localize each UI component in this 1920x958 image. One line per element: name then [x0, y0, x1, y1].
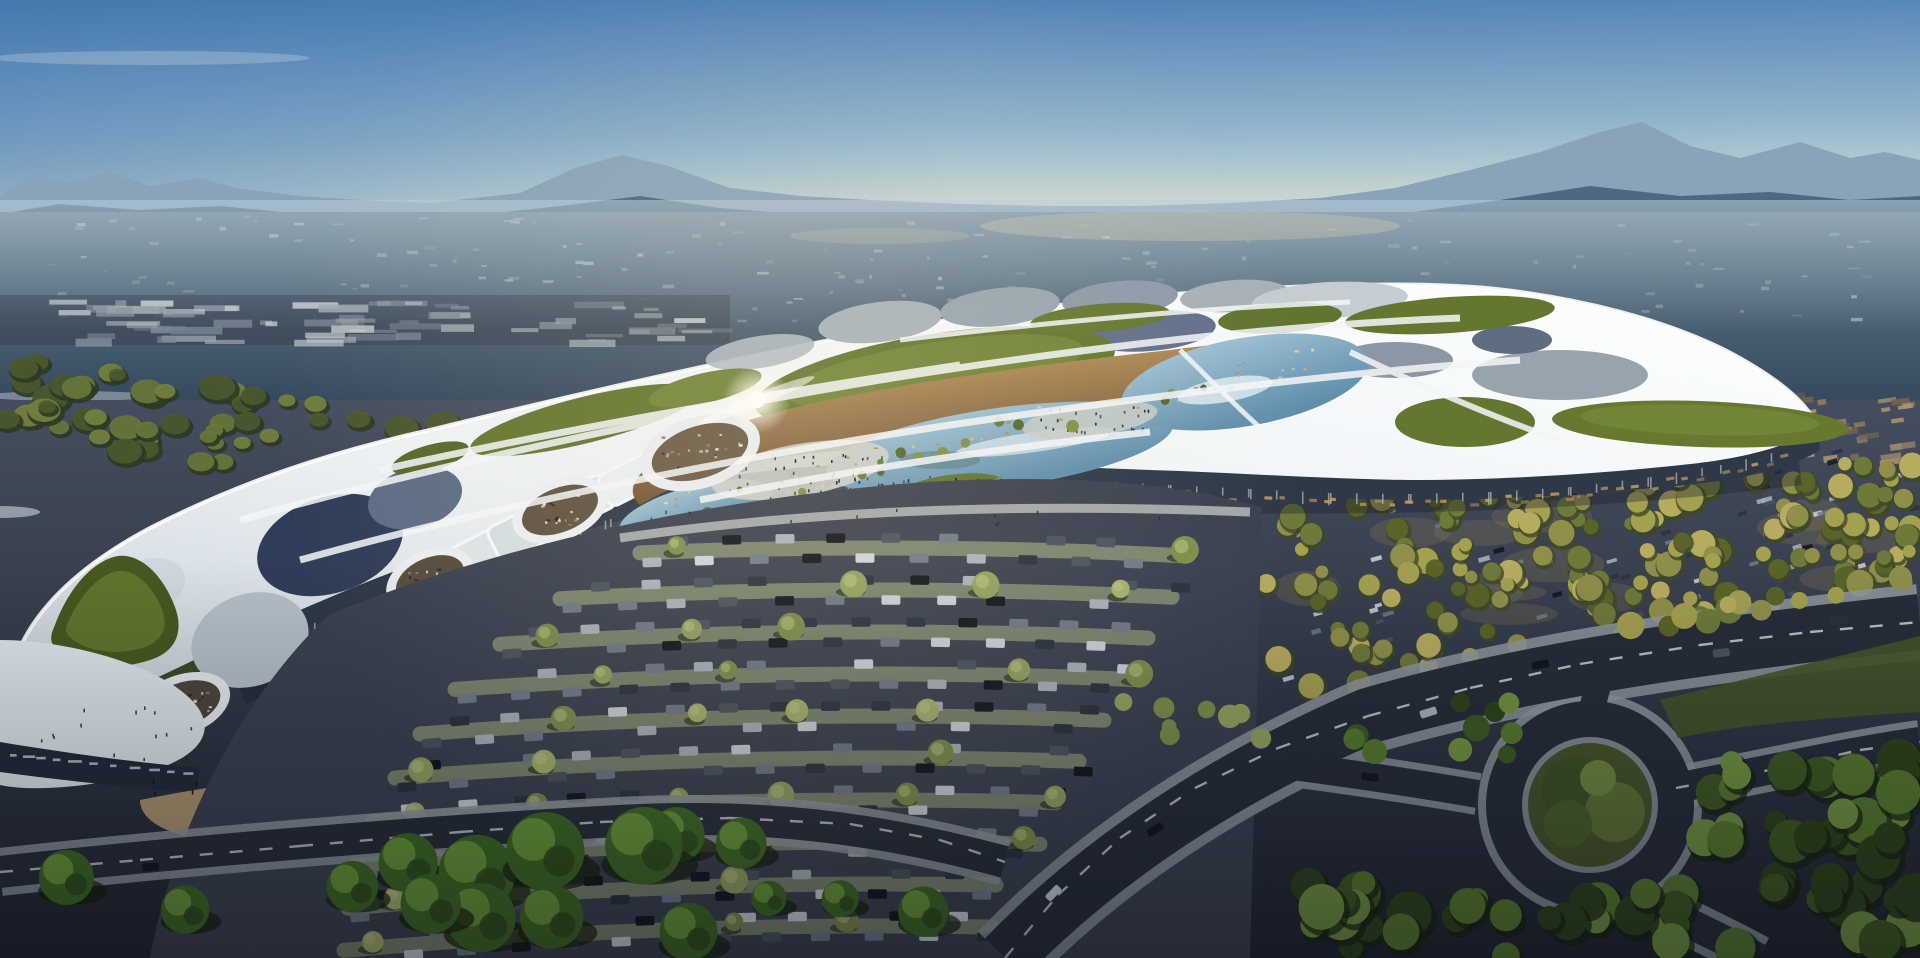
- architectural-rendering-image: [0, 0, 1920, 958]
- cloud-streak: [0, 51, 310, 65]
- vignette: [0, 560, 1920, 958]
- rendering-canvas: [0, 0, 1920, 958]
